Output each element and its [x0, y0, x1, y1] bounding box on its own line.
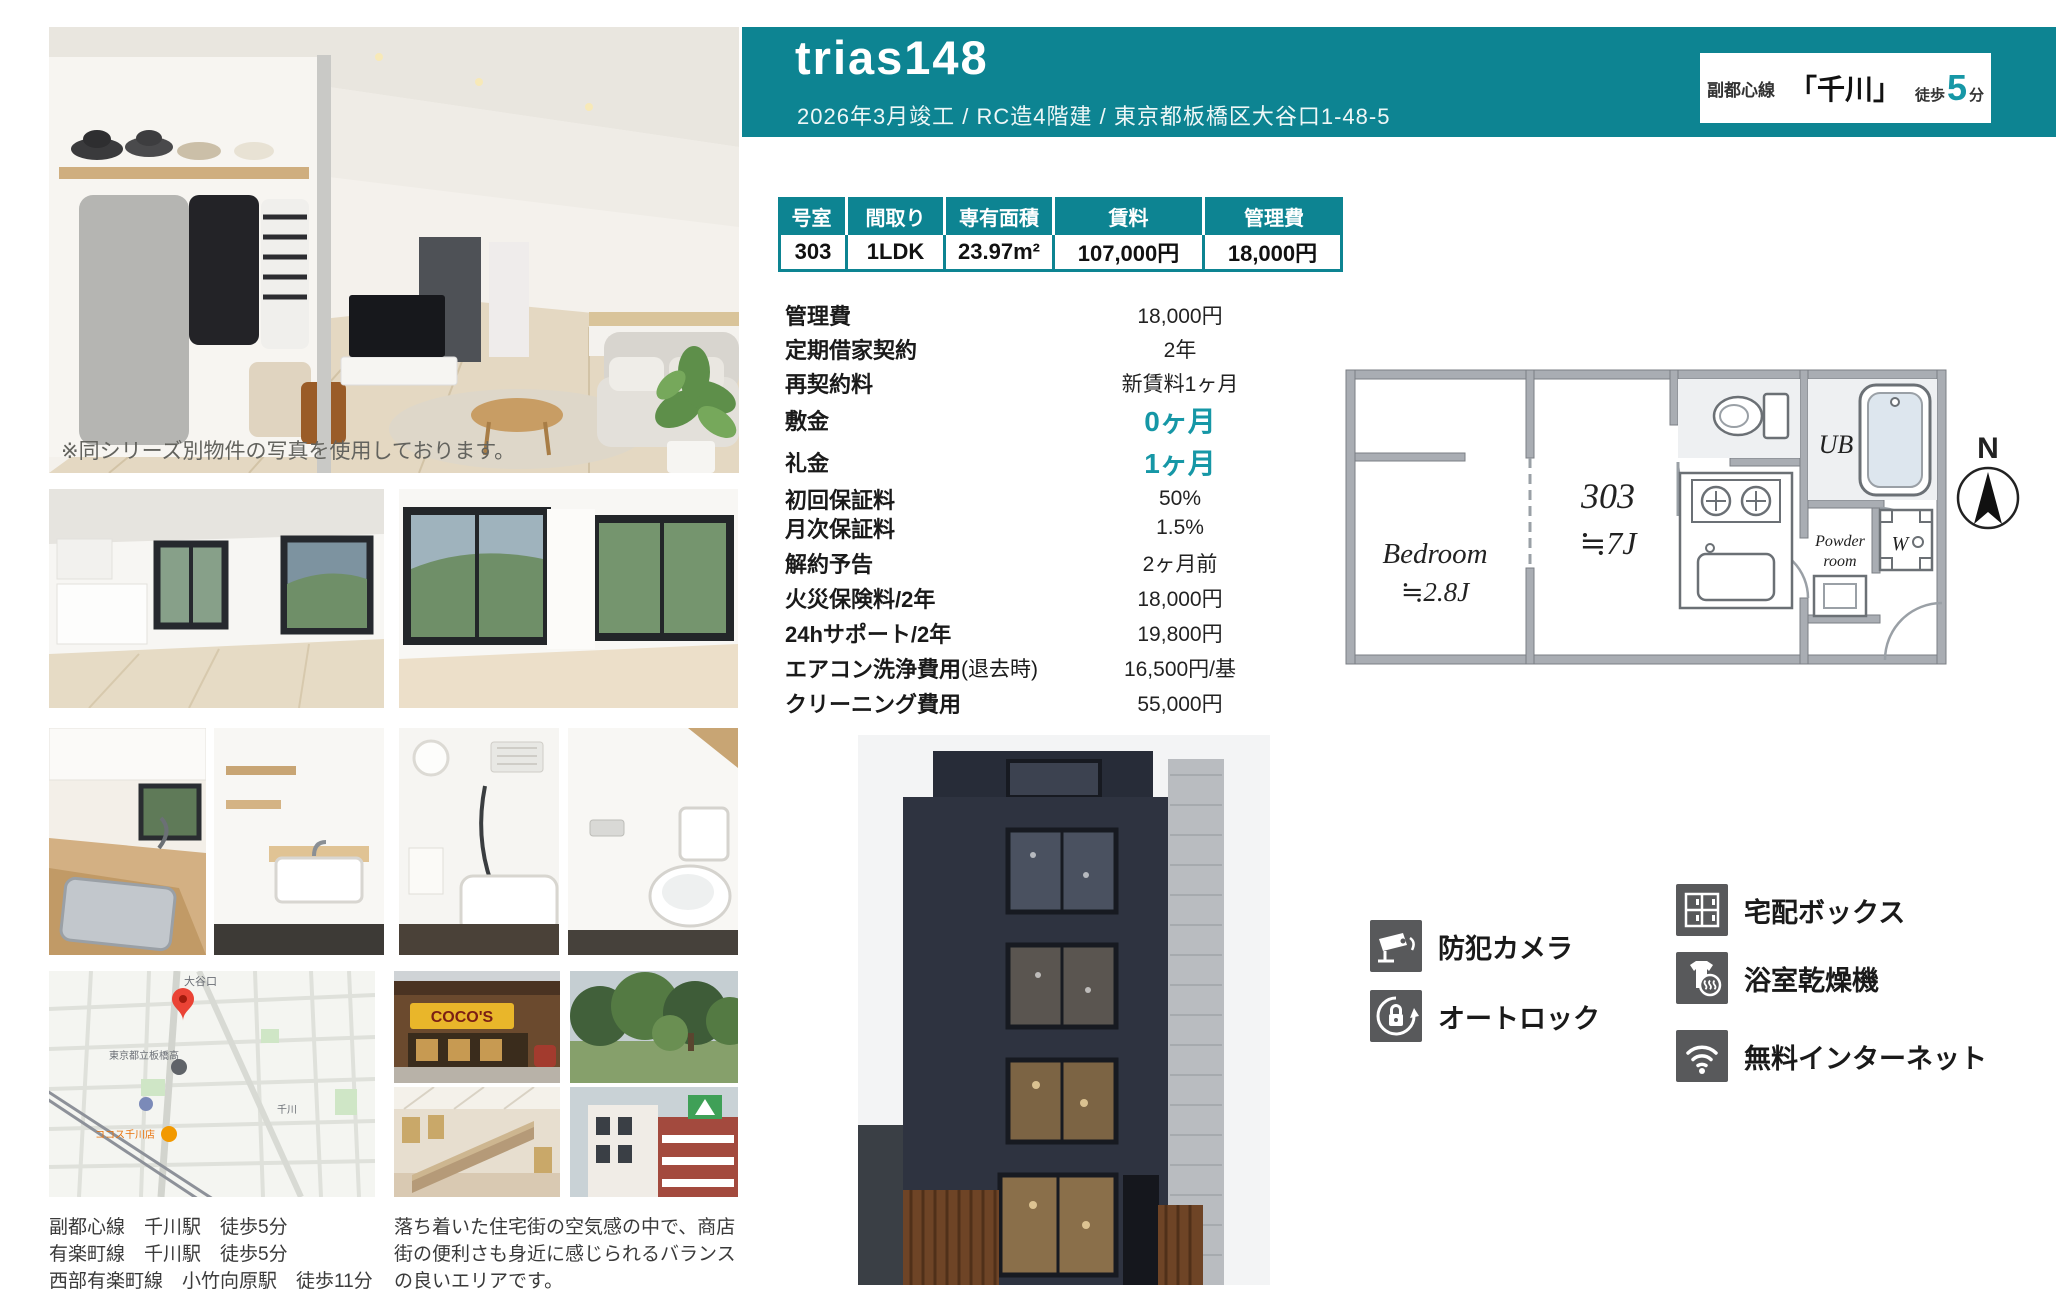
kitchen-sink-photo — [49, 728, 206, 955]
building-exterior-illustration — [858, 735, 1270, 1285]
restaurant-sign-text: COCO'S — [431, 1009, 494, 1026]
floorplan-unit-size: ≒7J — [1579, 525, 1638, 561]
restaurant-illustration: COCO'S — [394, 971, 560, 1083]
interior-illustration — [49, 27, 739, 473]
floor-plan-drawing: Bedroom ≒2.8J 303 ≒7J UB Powder room W N — [1340, 358, 2040, 674]
detail-row: エアコン洗浄費用 (退去時)16,500円/基 — [785, 651, 1345, 685]
building-exterior-photo — [858, 735, 1270, 1285]
detail-row: 再契約料新賃料1ヶ月 — [785, 366, 1345, 400]
property-title: trias148 — [795, 30, 989, 85]
property-flyer: ※同シリーズ別物件の写真を使用しております。 — [0, 0, 2056, 1289]
kitchen-living-illustration — [49, 489, 384, 708]
floorplan-ub-label: UB — [1819, 430, 1854, 459]
floorplan-bedroom-size: ≒2.8J — [1401, 577, 1471, 607]
corner-window-room-illustration — [399, 489, 738, 708]
amenity-free-internet: 無料インターネット — [1676, 1030, 1987, 1082]
room-number: 303 — [778, 235, 848, 272]
compass-n-label: N — [1977, 432, 1999, 465]
station-line-2: 有楽町線 千川駅 徒歩5分 — [49, 1241, 373, 1268]
amenity-bathroom-dryer: 浴室乾燥機 — [1676, 952, 1879, 1004]
detail-row: 火災保険料/2年18,000円 — [785, 581, 1345, 615]
security-camera-icon — [1370, 920, 1422, 972]
area-value: 23.97m² — [946, 235, 1055, 272]
photo-disclaimer-caption: ※同シリーズ別物件の写真を使用しております。 — [61, 435, 515, 465]
detail-row-deposit: 敷金0ヶ月 — [785, 398, 1345, 442]
map-label-school: 東京都立板橋高 — [109, 1049, 179, 1062]
amenity-security-camera: 防犯カメラ — [1370, 920, 1573, 972]
park-illustration — [570, 971, 738, 1083]
bathroom-illustration — [399, 728, 559, 955]
col-fee: 管理費 — [1205, 197, 1343, 235]
mall-interior-photo — [394, 1087, 560, 1197]
detail-row: 定期借家契約2年 — [785, 332, 1345, 366]
detail-row: 解約予告2ヶ月前 — [785, 546, 1345, 580]
location-map: 大谷口 東京都立板橋高 ココス千川店 千川 — [49, 971, 375, 1197]
floorplan-powder-label-1: Powder — [1814, 533, 1866, 550]
unit-summary-table: 号室 間取り 専有面積 賃料 管理費 303 1LDK 23.97m² 107,… — [778, 197, 1343, 272]
bathroom-dryer-icon — [1676, 952, 1728, 1004]
washbasin-illustration — [214, 728, 384, 955]
floorplan-powder-label-2: room — [1823, 553, 1856, 570]
toilet-photo — [568, 728, 738, 955]
floor-plan: Bedroom ≒2.8J 303 ≒7J UB Powder room W N — [1340, 358, 2040, 674]
detail-row: クリーニング費用55,000円 — [785, 686, 1345, 720]
map-illustration: 大谷口 東京都立板橋高 ココス千川店 千川 — [49, 971, 375, 1197]
col-area: 専有面積 — [946, 197, 1055, 235]
map-label-restaurant: ココス千川店 — [95, 1128, 155, 1141]
rent-value: 107,000円 — [1055, 235, 1205, 272]
area-description: 落ち着いた住宅街の空気感の中で、商店街の便利さも身近に感じられるバランスの良いエ… — [394, 1214, 746, 1289]
unit-table-data-row: 303 1LDK 23.97m² 107,000円 18,000円 — [778, 235, 1343, 272]
fee-value: 18,000円 — [1205, 235, 1343, 272]
kitchen-sink-illustration — [49, 728, 206, 955]
map-label-station: 千川 — [277, 1104, 297, 1116]
station-line-name: 副都心線 — [1707, 76, 1775, 101]
toilet-illustration — [568, 728, 738, 955]
floorplan-unit-label: 303 — [1580, 476, 1635, 516]
walk-time: 徒歩 5 分 — [1915, 70, 1984, 106]
park-trees-photo — [570, 971, 738, 1083]
col-layout: 間取り — [848, 197, 946, 235]
station-access-list: 副都心線 千川駅 徒歩5分 有楽町線 千川駅 徒歩5分 西部有楽町線 小竹向原駅… — [49, 1214, 373, 1289]
detail-row: 月次保証料1.5% — [785, 511, 1345, 545]
delivery-box-icon — [1676, 884, 1728, 936]
autolock-icon — [1370, 990, 1422, 1042]
amenity-delivery-box: 宅配ボックス — [1676, 884, 1905, 936]
restaurant-photo: COCO'S — [394, 971, 560, 1083]
neighborhood-building-photo — [570, 1087, 738, 1197]
bathroom-photo — [399, 728, 559, 955]
detail-row: 管理費18,000円 — [785, 298, 1345, 332]
layout-value: 1LDK — [848, 235, 946, 272]
compass-icon: N — [1958, 432, 2018, 528]
col-rent: 賃料 — [1055, 197, 1205, 235]
nearest-station-box: 副都心線 「千川」 徒歩 5 分 — [1700, 53, 1991, 123]
station-line-1: 副都心線 千川駅 徒歩5分 — [49, 1214, 373, 1241]
neighborhood-building-illustration — [570, 1087, 738, 1197]
amenity-autolock: オートロック — [1370, 990, 1600, 1042]
property-subtitle: 2026年3月竣工 / RC造4階建 / 東京都板橋区大谷口1-48-5 — [797, 99, 1390, 131]
detail-row-key-money: 礼金1ヶ月 — [785, 440, 1345, 484]
kitchen-living-photo — [49, 489, 384, 708]
unit-table-header-row: 号室 間取り 専有面積 賃料 管理費 — [778, 197, 1343, 235]
washbasin-photo — [214, 728, 384, 955]
main-interior-photo: ※同シリーズ別物件の写真を使用しております。 — [49, 27, 739, 473]
station-line-3: 西部有楽町線 小竹向原駅 徒歩11分 — [49, 1268, 373, 1289]
wifi-icon — [1676, 1030, 1728, 1082]
corner-window-room-photo — [399, 489, 738, 708]
map-label-district: 大谷口 — [184, 974, 217, 988]
station-name: 「千川」 — [1789, 68, 1901, 108]
detail-row: 24hサポート/2年19,800円 — [785, 616, 1345, 650]
mall-illustration — [394, 1087, 560, 1197]
floorplan-washer-label: W — [1892, 533, 1911, 555]
col-room: 号室 — [778, 197, 848, 235]
floorplan-bedroom-label: Bedroom — [1382, 538, 1487, 570]
